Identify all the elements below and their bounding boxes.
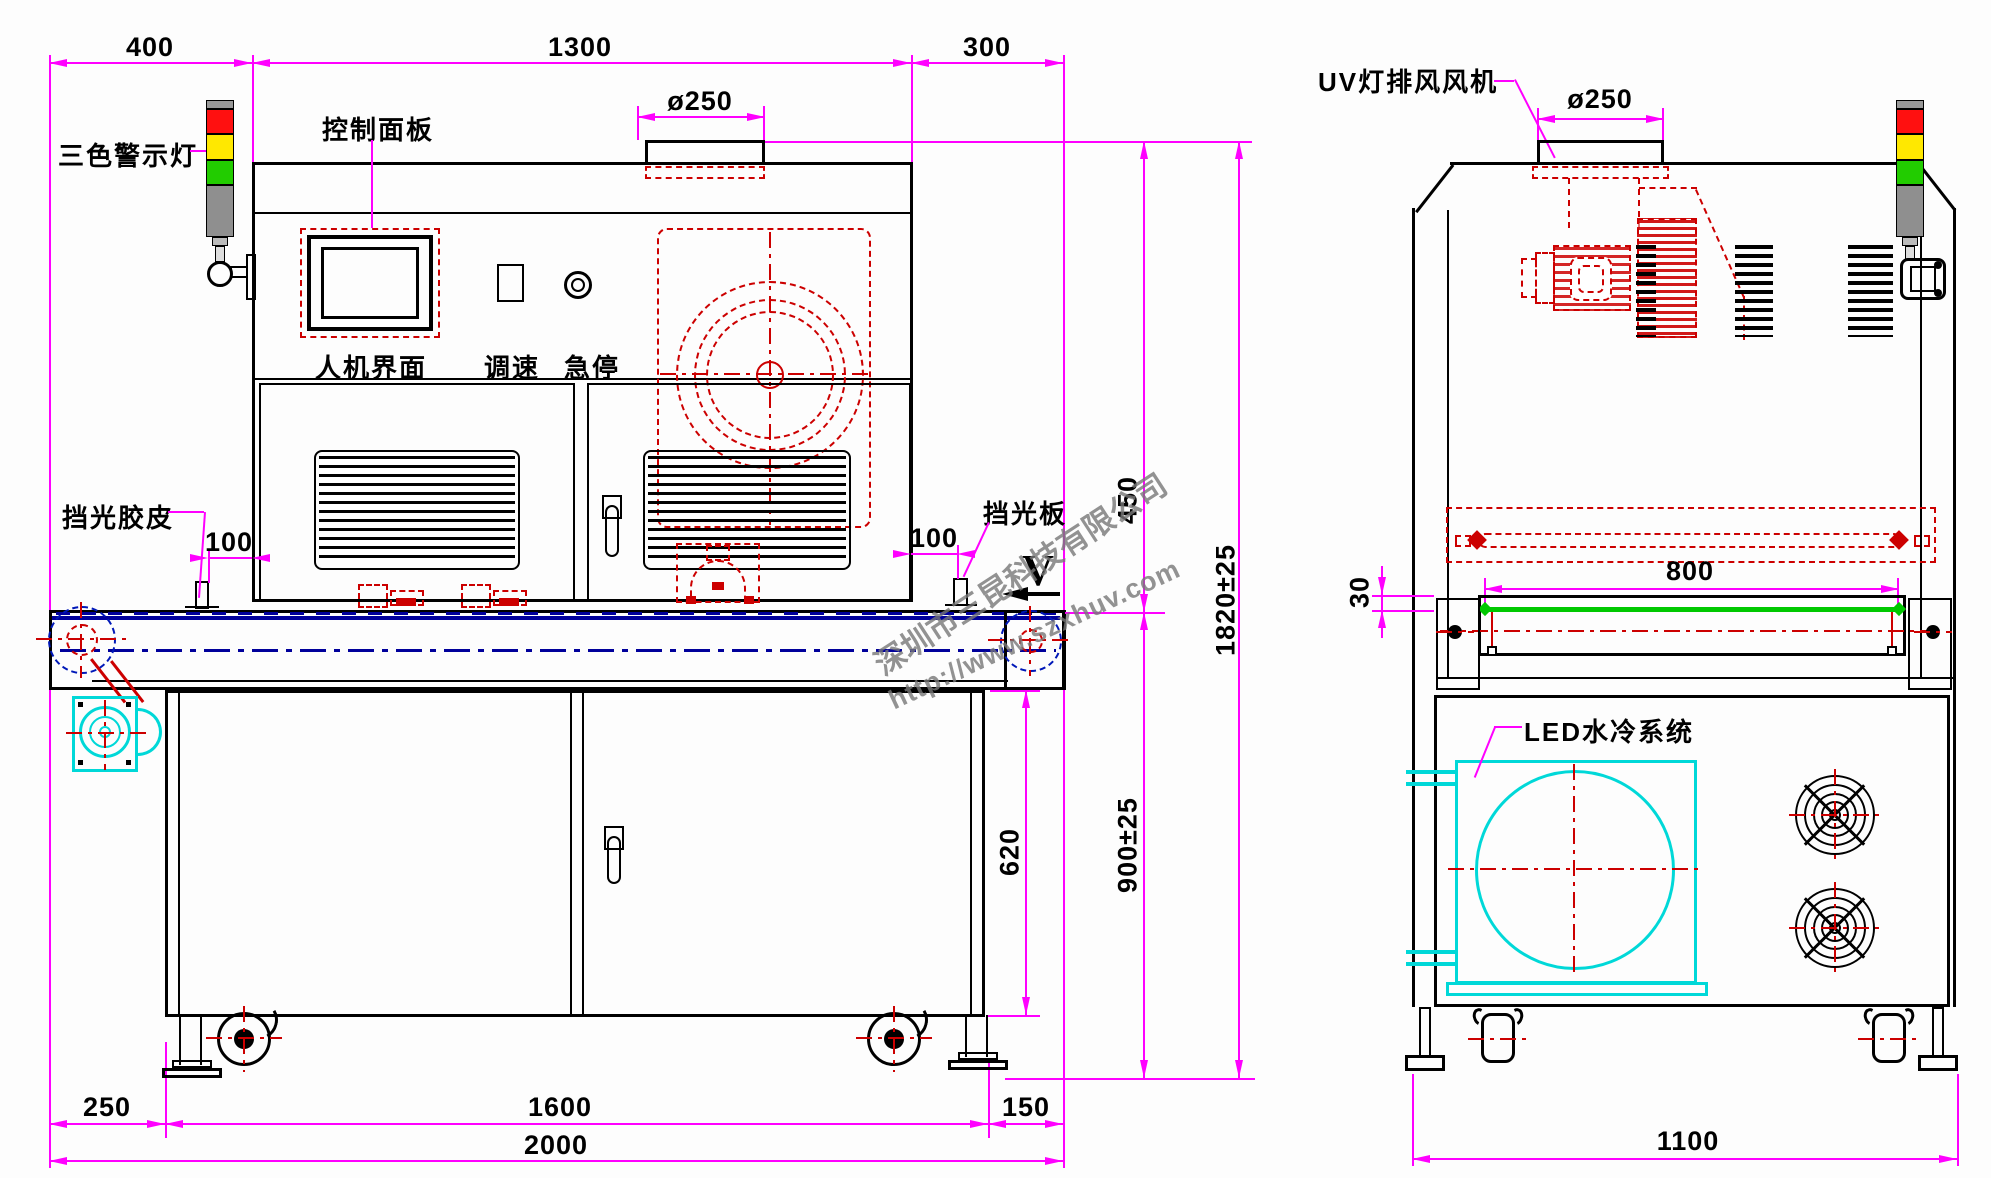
tower-light-yellow <box>206 134 234 160</box>
conveyor-centerline <box>1440 630 1932 632</box>
motor-bolt <box>78 702 83 707</box>
arrow <box>1045 59 1063 67</box>
cabinet-door-line <box>570 690 572 1017</box>
dim-duct-diameter: ø250 <box>667 86 733 117</box>
slab-notch <box>1487 646 1497 656</box>
cooler-pipe <box>1406 962 1458 966</box>
slab-notch <box>1887 646 1897 656</box>
ext-line <box>1005 1078 1255 1080</box>
hidden-detail <box>396 598 416 606</box>
chamber-floor-line <box>1436 677 1956 679</box>
cabinet-frame-line <box>178 690 180 1017</box>
dim-1820: 1820±25 <box>1211 544 1242 656</box>
motor-bolt <box>126 760 131 765</box>
arrow <box>1140 1060 1148 1078</box>
dim-150: 150 <box>1002 1092 1050 1123</box>
roof-chamfer <box>1415 164 1454 213</box>
arrow <box>234 59 252 67</box>
belt-dashed-line <box>56 612 1056 615</box>
tower-light-cap <box>206 100 234 109</box>
water-cooling-label: LED水冷系统 <box>1524 712 1694 749</box>
dim-1100: 1100 <box>1657 1126 1720 1157</box>
fan-centerline <box>660 373 868 375</box>
water-cooler-base <box>1446 982 1708 996</box>
leg-line <box>965 1015 967 1057</box>
arrow <box>1378 577 1386 595</box>
side-louver <box>1636 245 1656 337</box>
lamp-top-hidden <box>706 545 730 561</box>
foot-plate <box>162 1068 222 1078</box>
cooler-pipe <box>1406 770 1458 774</box>
foot-plate <box>1918 1055 1958 1071</box>
foot-plate <box>1405 1055 1445 1071</box>
light-shield-rubber <box>195 581 209 609</box>
arrow <box>49 1120 67 1128</box>
foot-pad <box>172 1060 212 1068</box>
hidden-detail <box>499 598 519 606</box>
light-shield-rubber-label: 挡光胶皮 <box>62 498 174 535</box>
door-handle <box>605 505 619 557</box>
arrow <box>1140 612 1148 630</box>
cabinet-handle <box>607 836 621 884</box>
dim-100-right: 100 <box>910 523 958 554</box>
motor-step <box>1521 258 1537 298</box>
foot-plate <box>948 1060 1008 1070</box>
foot-stem <box>1932 1007 1944 1057</box>
bracket-bolt <box>1934 261 1942 269</box>
tower-light-stem <box>215 246 225 262</box>
grille-centerline <box>1834 769 1836 861</box>
foot-pad <box>958 1052 998 1060</box>
dim-800: 800 <box>1666 556 1714 587</box>
hidden-detail <box>358 584 388 608</box>
ext-line <box>763 141 1252 143</box>
dim-250: 250 <box>83 1092 131 1123</box>
uv-lamp-tube-hidden <box>1478 533 1901 548</box>
tower-light-stem <box>1902 237 1918 246</box>
conveyor-bracket <box>1908 598 1952 690</box>
roller-centerline <box>36 638 128 640</box>
tower-light-stem <box>212 237 228 246</box>
arrow <box>1537 115 1555 123</box>
side-wall <box>1412 208 1415 1007</box>
tower-light-green <box>206 160 234 185</box>
bracket-bolt <box>1934 289 1942 297</box>
arrow <box>1235 141 1243 159</box>
arrow <box>747 113 765 121</box>
ext-line <box>763 106 765 140</box>
arrow <box>1378 610 1386 628</box>
arrow <box>911 59 929 67</box>
conveyor-side-slab <box>1478 595 1906 656</box>
caster-centerline <box>1468 1038 1528 1040</box>
leader-line <box>190 150 206 152</box>
hidden-detail <box>744 596 754 604</box>
ext-line <box>1662 108 1664 140</box>
hidden-detail <box>686 596 696 604</box>
arrow <box>1022 997 1030 1015</box>
arrow <box>1022 690 1030 708</box>
motor-step <box>1535 252 1555 304</box>
leg-line <box>179 1015 181 1065</box>
arrow <box>1045 1157 1063 1165</box>
exhaust-duct <box>645 140 765 165</box>
ext-line <box>1537 108 1539 140</box>
dim-30: 30 <box>1345 576 1376 608</box>
roof-line <box>1450 162 1919 165</box>
dim-900: 900±25 <box>1113 797 1144 893</box>
duct-hidden-line <box>1568 178 1570 228</box>
motor-junction-inner <box>1578 265 1604 293</box>
exhaust-fan-label: UV灯排风风机 <box>1318 62 1498 99</box>
bolt-centerline <box>1914 631 1952 633</box>
belt-green-line <box>1487 607 1897 612</box>
tower-light-green <box>1896 160 1924 185</box>
roller-centerline <box>80 602 82 678</box>
leg-line <box>200 1015 202 1065</box>
dim-2000: 2000 <box>524 1130 588 1161</box>
arrow <box>49 1157 67 1165</box>
motor-centerline <box>66 732 146 734</box>
duct-flange-hidden <box>645 166 765 179</box>
tower-light-cap <box>1896 100 1924 109</box>
dim-1600: 1600 <box>528 1092 592 1123</box>
arrow <box>893 550 911 558</box>
tower-light-body <box>206 185 234 237</box>
dim-1300: 1300 <box>548 32 612 63</box>
foot-stem <box>1419 1007 1431 1057</box>
side-louver <box>1848 245 1893 337</box>
arrow <box>893 59 911 67</box>
leader-line <box>1494 726 1522 728</box>
leg-line <box>986 1015 988 1057</box>
arrow <box>1412 1155 1430 1163</box>
dim-620: 620 <box>995 828 1026 876</box>
arrow <box>252 554 270 562</box>
ext-line <box>911 55 913 165</box>
tower-light-body <box>1896 185 1924 237</box>
grille-centerline <box>1834 882 1836 974</box>
arrow <box>1235 1060 1243 1078</box>
arrow <box>637 113 655 121</box>
uv-curing-machine-cad-drawing: 400 1300 300 ø250 人机界面 <box>0 0 1991 1178</box>
cabinet-outline <box>165 690 985 1017</box>
roof-band-line <box>252 212 913 214</box>
dim-line <box>1412 1158 1959 1160</box>
motor-bolt <box>78 760 83 765</box>
dim-line <box>1537 118 1664 120</box>
arrow <box>252 59 270 67</box>
lamp-endcap <box>1914 535 1930 547</box>
arrow <box>1140 141 1148 159</box>
arrow <box>970 1120 988 1128</box>
dim-duct-diameter-side: ø250 <box>1567 84 1633 115</box>
tower-light-yellow <box>1896 134 1924 160</box>
estop-label: 急停 <box>564 348 620 385</box>
tower-light-red <box>206 109 234 134</box>
motor-centerline <box>104 700 106 770</box>
hmi-screen <box>321 247 419 319</box>
side-louver <box>1735 245 1773 337</box>
scroll-hidden-line <box>1639 187 1697 189</box>
ext-line <box>637 106 639 140</box>
leader-line <box>1494 80 1514 82</box>
hmi-label: 人机界面 <box>315 348 427 385</box>
left-grille-slats <box>319 456 515 564</box>
hidden-detail <box>712 582 724 590</box>
arrow <box>165 1120 183 1128</box>
water-cooler-fan-circle <box>1475 770 1675 970</box>
light-shield-rubber-base <box>185 606 219 608</box>
cooler-pipe <box>1406 782 1458 786</box>
dim-400: 400 <box>126 32 174 63</box>
arrow <box>1939 1155 1957 1163</box>
motor-bolt <box>126 702 131 707</box>
duct-flange-hidden <box>1532 166 1669 179</box>
speed-switch <box>497 264 524 302</box>
cooler-pipe <box>1406 950 1458 954</box>
estop-button-inner <box>571 278 585 292</box>
leader-line <box>371 140 373 228</box>
speed-label: 调速 <box>484 348 540 385</box>
dim-100-left: 100 <box>205 527 253 558</box>
ext-line <box>988 1015 1040 1017</box>
arrow <box>1646 115 1664 123</box>
ext-line <box>252 55 254 165</box>
arrow <box>1484 585 1502 593</box>
side-wall <box>1953 208 1956 1007</box>
conveyor-bracket <box>1436 598 1480 690</box>
bolt-centerline <box>1436 631 1474 633</box>
conveyor-inner-line <box>92 680 1008 682</box>
cooler-centerline <box>1573 764 1575 976</box>
tower-light-bracket-inner <box>1910 266 1936 292</box>
ext-line <box>1412 1074 1414 1166</box>
cabinet-door-line <box>582 690 584 1017</box>
hidden-detail <box>461 584 491 608</box>
arrow <box>1881 585 1899 593</box>
leader-line <box>168 511 204 513</box>
left-roller-shaft <box>66 624 98 656</box>
cabinet-frame-line <box>970 690 972 1017</box>
control-panel-label: 控制面板 <box>322 110 434 147</box>
dim-300: 300 <box>963 32 1011 63</box>
caster-centerline <box>1858 1038 1918 1040</box>
ext-line <box>990 690 1040 692</box>
tower-light-label: 三色警示灯 <box>58 136 198 173</box>
tower-light-wall-plate <box>246 254 256 300</box>
arrow <box>147 1120 165 1128</box>
arrow <box>49 59 67 67</box>
dim-line <box>1484 588 1899 590</box>
dim-line <box>165 1123 990 1125</box>
ext-line <box>1957 1074 1959 1166</box>
tower-light-red <box>1896 109 1924 134</box>
